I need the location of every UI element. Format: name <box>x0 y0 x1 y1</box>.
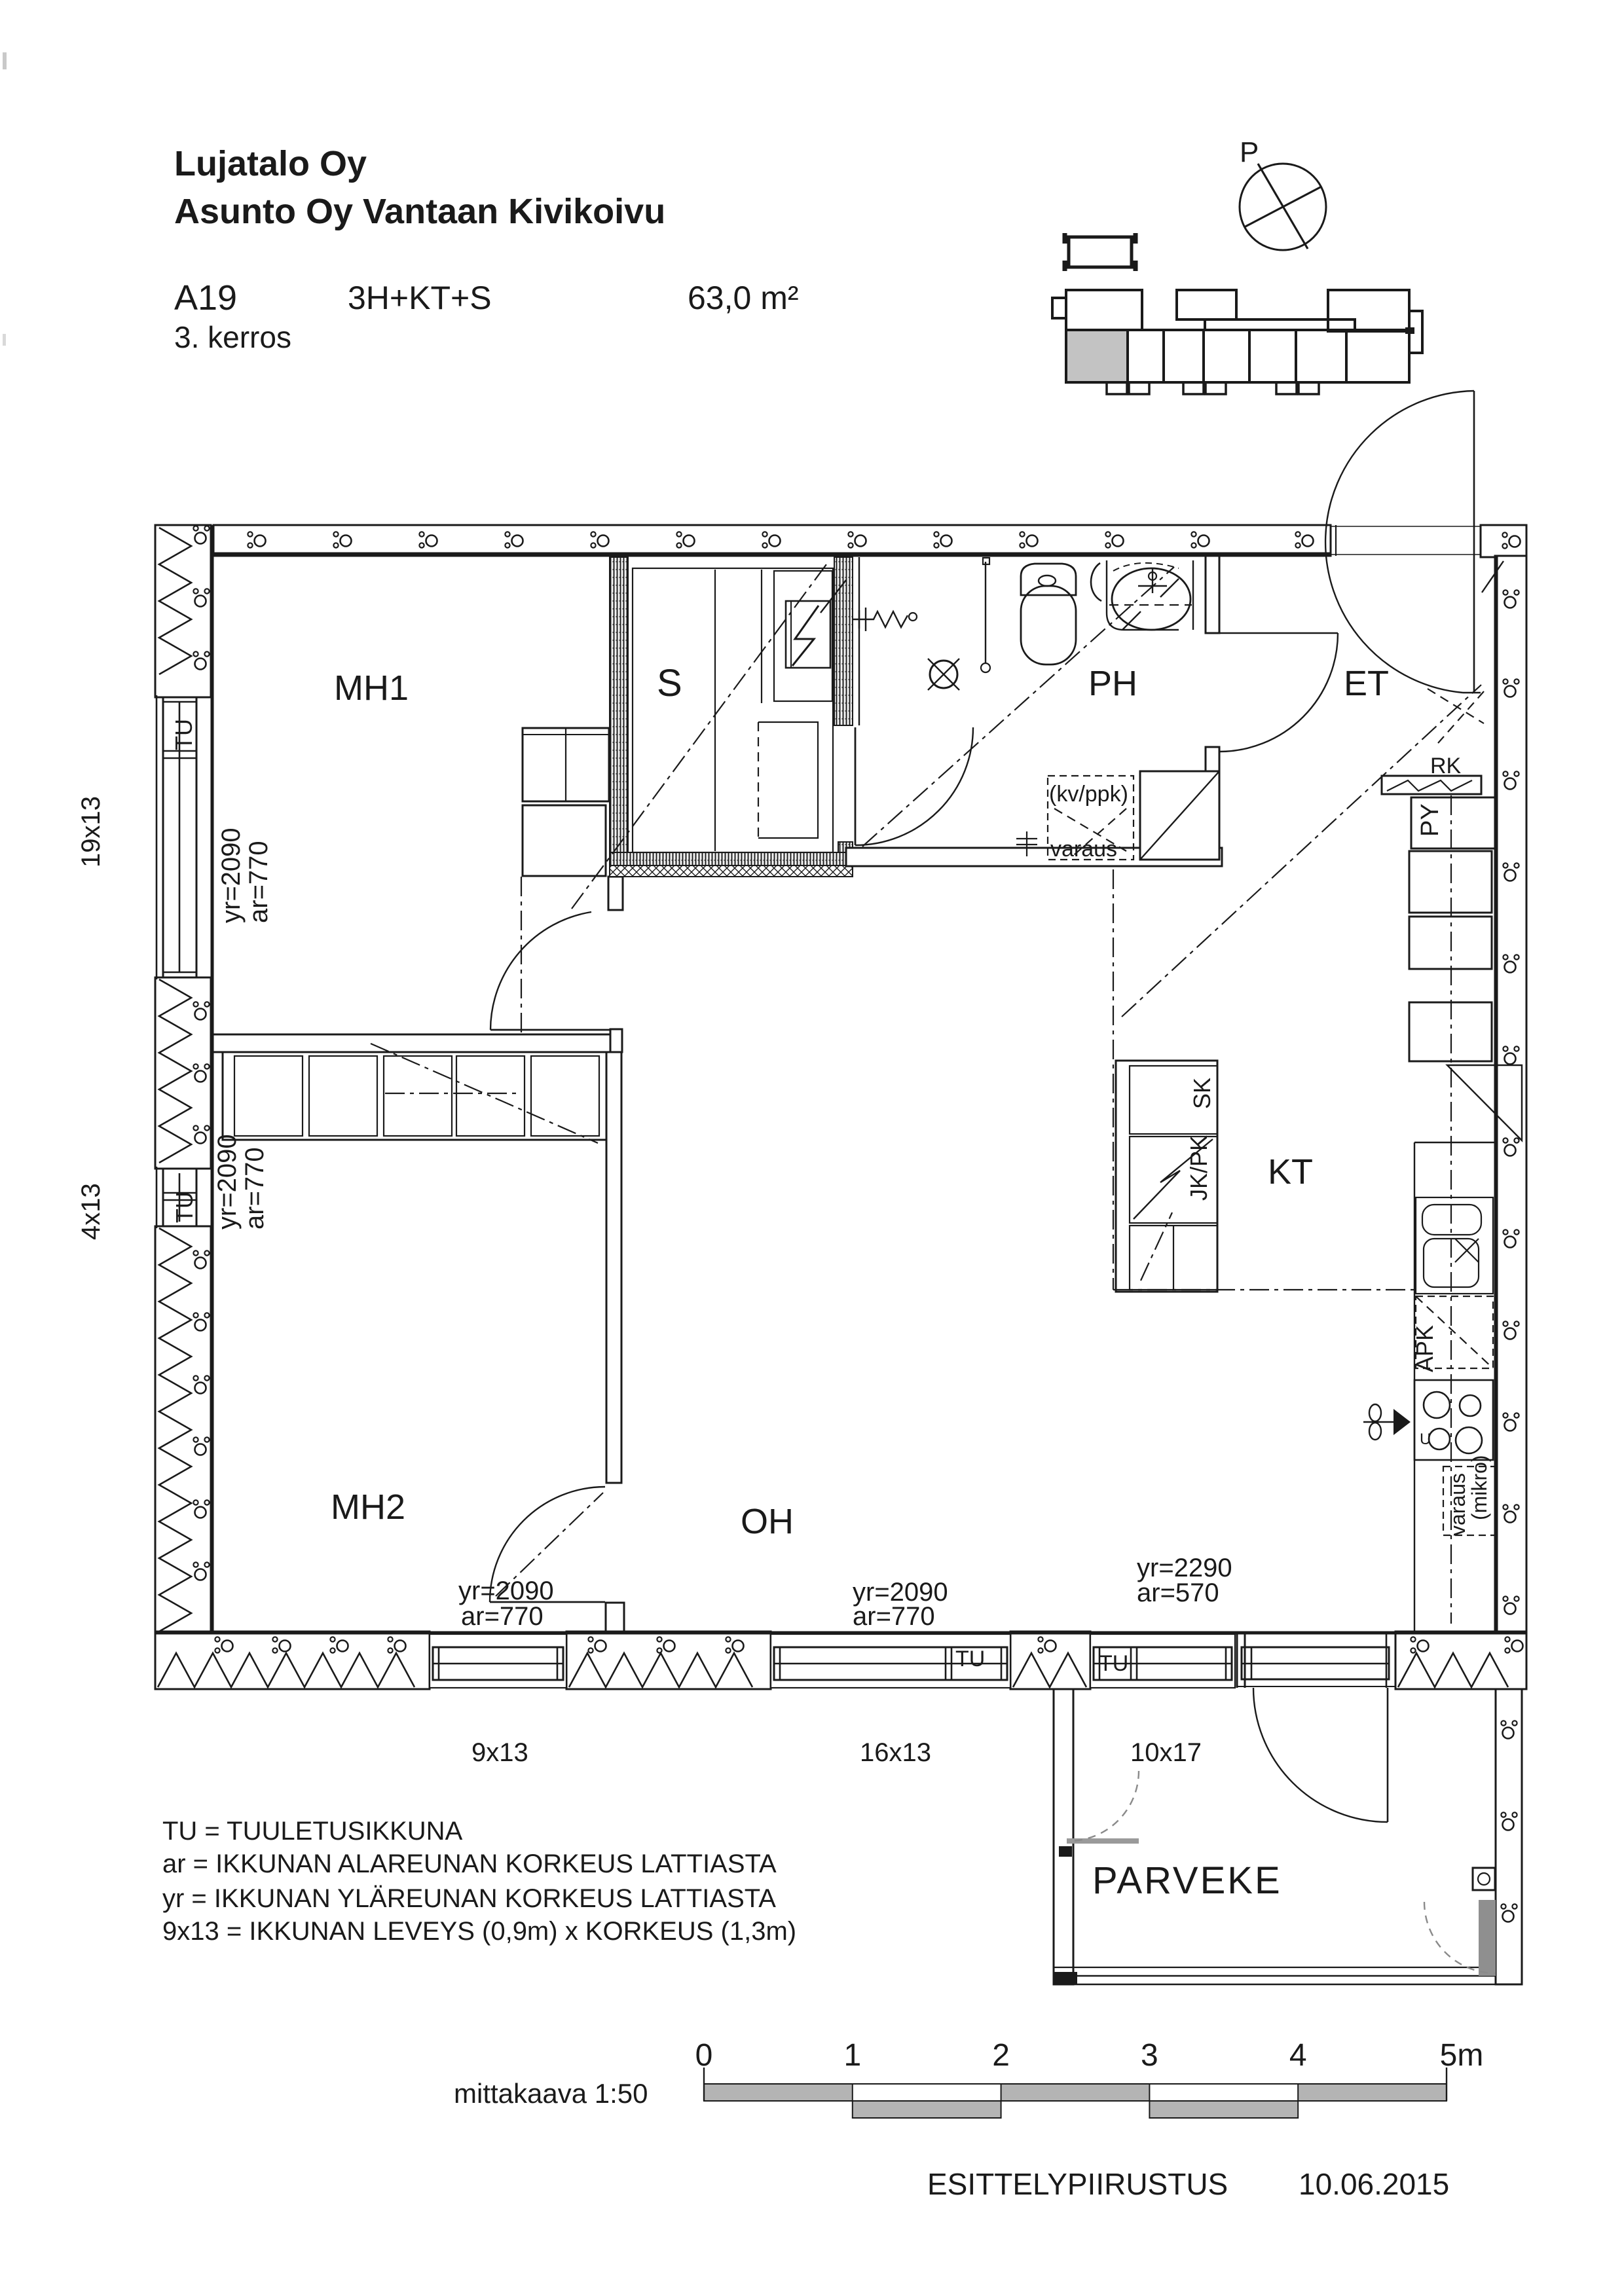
svg-text:MH1: MH1 <box>334 668 409 708</box>
svg-text:yr = IKKUNAN YLÄREUNAN KORKEUS: yr = IKKUNAN YLÄREUNAN KORKEUS LATTIASTA <box>162 1884 776 1913</box>
svg-text:PARVEKE: PARVEKE <box>1092 1859 1282 1902</box>
svg-text:4: 4 <box>1289 2038 1307 2073</box>
svg-text:S: S <box>657 662 682 704</box>
svg-text:A19: A19 <box>174 278 237 318</box>
svg-text:yr=2090: yr=2090 <box>213 1134 242 1230</box>
svg-text:MH2: MH2 <box>331 1487 405 1527</box>
svg-text:10.06.2015: 10.06.2015 <box>1299 2167 1449 2201</box>
svg-text:ESITTELYPIIRUSTUS: ESITTELYPIIRUSTUS <box>927 2167 1228 2201</box>
svg-text:1: 1 <box>843 2038 861 2073</box>
svg-text:9x13 = IKKUNAN LEVEYS (0,9m) x: 9x13 = IKKUNAN LEVEYS (0,9m) x KORKEUS (… <box>162 1917 796 1946</box>
svg-text:63,0 m²: 63,0 m² <box>688 280 799 316</box>
svg-text:ar=570: ar=570 <box>1137 1578 1219 1607</box>
svg-text:ar=770: ar=770 <box>461 1602 544 1631</box>
svg-text:TU: TU <box>955 1647 985 1671</box>
svg-text:9x13: 9x13 <box>471 1738 528 1767</box>
svg-text:varaus: varaus <box>1446 1473 1469 1536</box>
svg-text:U: U <box>1420 1430 1431 1448</box>
svg-text:3. kerros: 3. kerros <box>174 320 291 354</box>
svg-text:JK/PK: JK/PK <box>1185 1135 1212 1201</box>
svg-text:RK: RK <box>1430 754 1462 778</box>
svg-text:Lujatalo Oy: Lujatalo Oy <box>174 144 367 183</box>
svg-text:(mikro): (mikro) <box>1467 1455 1491 1520</box>
svg-text:SK: SK <box>1189 1078 1215 1109</box>
svg-text:varaus: varaus <box>1050 837 1117 862</box>
svg-text:ar=770: ar=770 <box>853 1602 935 1631</box>
svg-text:ET: ET <box>1344 664 1389 703</box>
svg-text:19x13: 19x13 <box>77 796 105 867</box>
svg-text:ar = IKKUNAN ALAREUNAN KORKEUS: ar = IKKUNAN ALAREUNAN KORKEUS LATTIASTA <box>162 1850 777 1878</box>
svg-text:Asunto Oy Vantaan Kivikoivu: Asunto Oy Vantaan Kivikoivu <box>174 192 665 231</box>
svg-text:TU: TU <box>1099 1651 1128 1676</box>
svg-text:TU: TU <box>170 719 197 750</box>
svg-text:yr=2090: yr=2090 <box>217 828 246 923</box>
svg-text:APK: APK <box>1411 1325 1438 1372</box>
svg-text:PH: PH <box>1088 664 1137 703</box>
svg-text:10x17: 10x17 <box>1130 1738 1202 1767</box>
svg-text:PY: PY <box>1416 803 1444 837</box>
svg-text:yr=2090: yr=2090 <box>458 1576 554 1605</box>
svg-text:TU: TU <box>171 1192 198 1223</box>
svg-text:TU = TUULETUSIKKUNA: TU = TUULETUSIKKUNA <box>162 1817 463 1846</box>
svg-text:16x13: 16x13 <box>860 1738 931 1767</box>
svg-text:P: P <box>1240 136 1259 168</box>
svg-text:2: 2 <box>992 2038 1010 2073</box>
svg-text:3H+KT+S: 3H+KT+S <box>348 280 492 316</box>
svg-text:3: 3 <box>1141 2038 1158 2073</box>
svg-text:(kv/ppk): (kv/ppk) <box>1049 782 1128 807</box>
svg-text:4x13: 4x13 <box>77 1183 105 1240</box>
svg-text:mittakaava 1:50: mittakaava 1:50 <box>454 2078 648 2109</box>
svg-text:ar=770: ar=770 <box>244 841 273 923</box>
svg-text:0: 0 <box>695 2038 713 2073</box>
svg-text:5m: 5m <box>1440 2038 1484 2073</box>
svg-text:KT: KT <box>1268 1152 1313 1192</box>
svg-text:ar=770: ar=770 <box>240 1147 269 1230</box>
svg-text:OH: OH <box>741 1502 794 1541</box>
